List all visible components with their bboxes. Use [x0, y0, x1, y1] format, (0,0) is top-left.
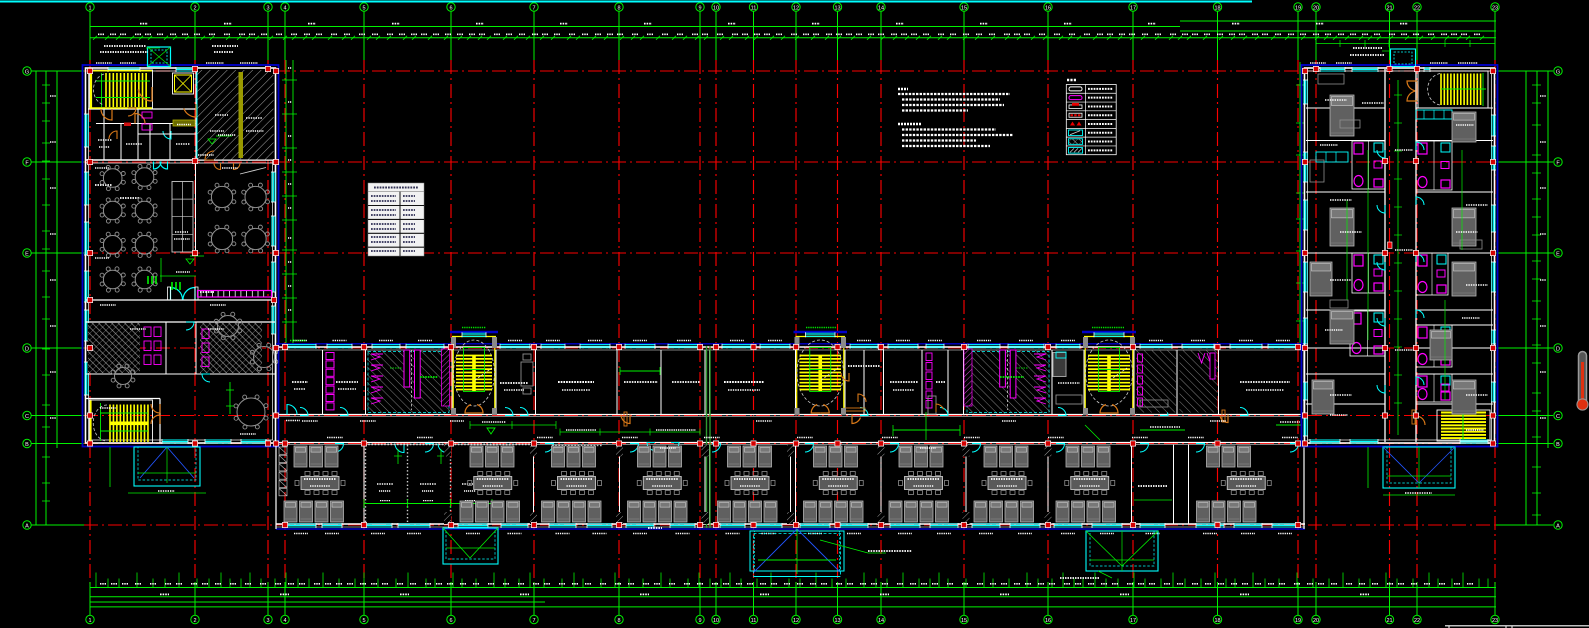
svg-text:14: 14	[878, 618, 884, 624]
svg-text:4: 4	[283, 618, 286, 624]
svg-text:6: 6	[449, 618, 452, 624]
svg-text:17: 17	[1130, 5, 1136, 11]
svg-text:7: 7	[532, 5, 535, 11]
svg-text:B: B	[25, 442, 29, 448]
svg-text:D: D	[25, 346, 29, 352]
svg-text:10: 10	[713, 5, 719, 11]
svg-text:G: G	[1556, 69, 1560, 75]
svg-text:5: 5	[362, 618, 365, 624]
svg-text:18: 18	[1214, 5, 1220, 11]
svg-text:23: 23	[1492, 5, 1498, 11]
svg-text:8: 8	[617, 5, 620, 11]
svg-text:6: 6	[449, 5, 452, 11]
svg-text:14: 14	[878, 5, 884, 11]
svg-text:22: 22	[1414, 5, 1420, 11]
svg-text:22: 22	[1414, 618, 1420, 624]
svg-text:7: 7	[532, 618, 535, 624]
svg-text:D: D	[1556, 346, 1560, 352]
svg-text:2: 2	[193, 5, 196, 11]
svg-text:B: B	[1556, 442, 1560, 448]
svg-text:4: 4	[283, 5, 286, 11]
svg-text:21: 21	[1386, 618, 1392, 624]
svg-text:C: C	[25, 414, 29, 420]
svg-text:1: 1	[88, 5, 91, 11]
svg-text:9: 9	[698, 618, 701, 624]
svg-text:21: 21	[1386, 5, 1392, 11]
svg-text:20: 20	[1313, 5, 1319, 11]
svg-text:13: 13	[834, 5, 840, 11]
svg-text:20: 20	[1313, 618, 1319, 624]
svg-text:16: 16	[1045, 618, 1051, 624]
svg-text:2: 2	[193, 618, 196, 624]
svg-text:E: E	[25, 251, 29, 257]
svg-text:C: C	[1556, 414, 1560, 420]
svg-text:17: 17	[1130, 618, 1136, 624]
svg-text:A: A	[25, 523, 29, 529]
svg-text:11: 11	[751, 618, 757, 624]
svg-text:G: G	[25, 69, 29, 75]
svg-text:12: 12	[793, 618, 799, 624]
svg-text:12: 12	[793, 5, 799, 11]
svg-text:23: 23	[1492, 618, 1498, 624]
svg-text:8: 8	[617, 618, 620, 624]
svg-text:15: 15	[961, 5, 967, 11]
svg-text:11: 11	[751, 5, 757, 11]
svg-text:E: E	[1556, 251, 1560, 257]
svg-text:16: 16	[1045, 5, 1051, 11]
svg-text:19: 19	[1295, 5, 1301, 11]
svg-text:19: 19	[1295, 618, 1301, 624]
svg-text:9: 9	[698, 5, 701, 11]
svg-text:1: 1	[88, 618, 91, 624]
svg-text:15: 15	[961, 618, 967, 624]
svg-text:3: 3	[266, 618, 269, 624]
svg-text:A: A	[1556, 523, 1560, 529]
svg-text:3: 3	[266, 5, 269, 11]
svg-text:13: 13	[834, 618, 840, 624]
svg-text:5: 5	[362, 5, 365, 11]
svg-text:18: 18	[1214, 618, 1220, 624]
svg-text:10: 10	[713, 618, 719, 624]
